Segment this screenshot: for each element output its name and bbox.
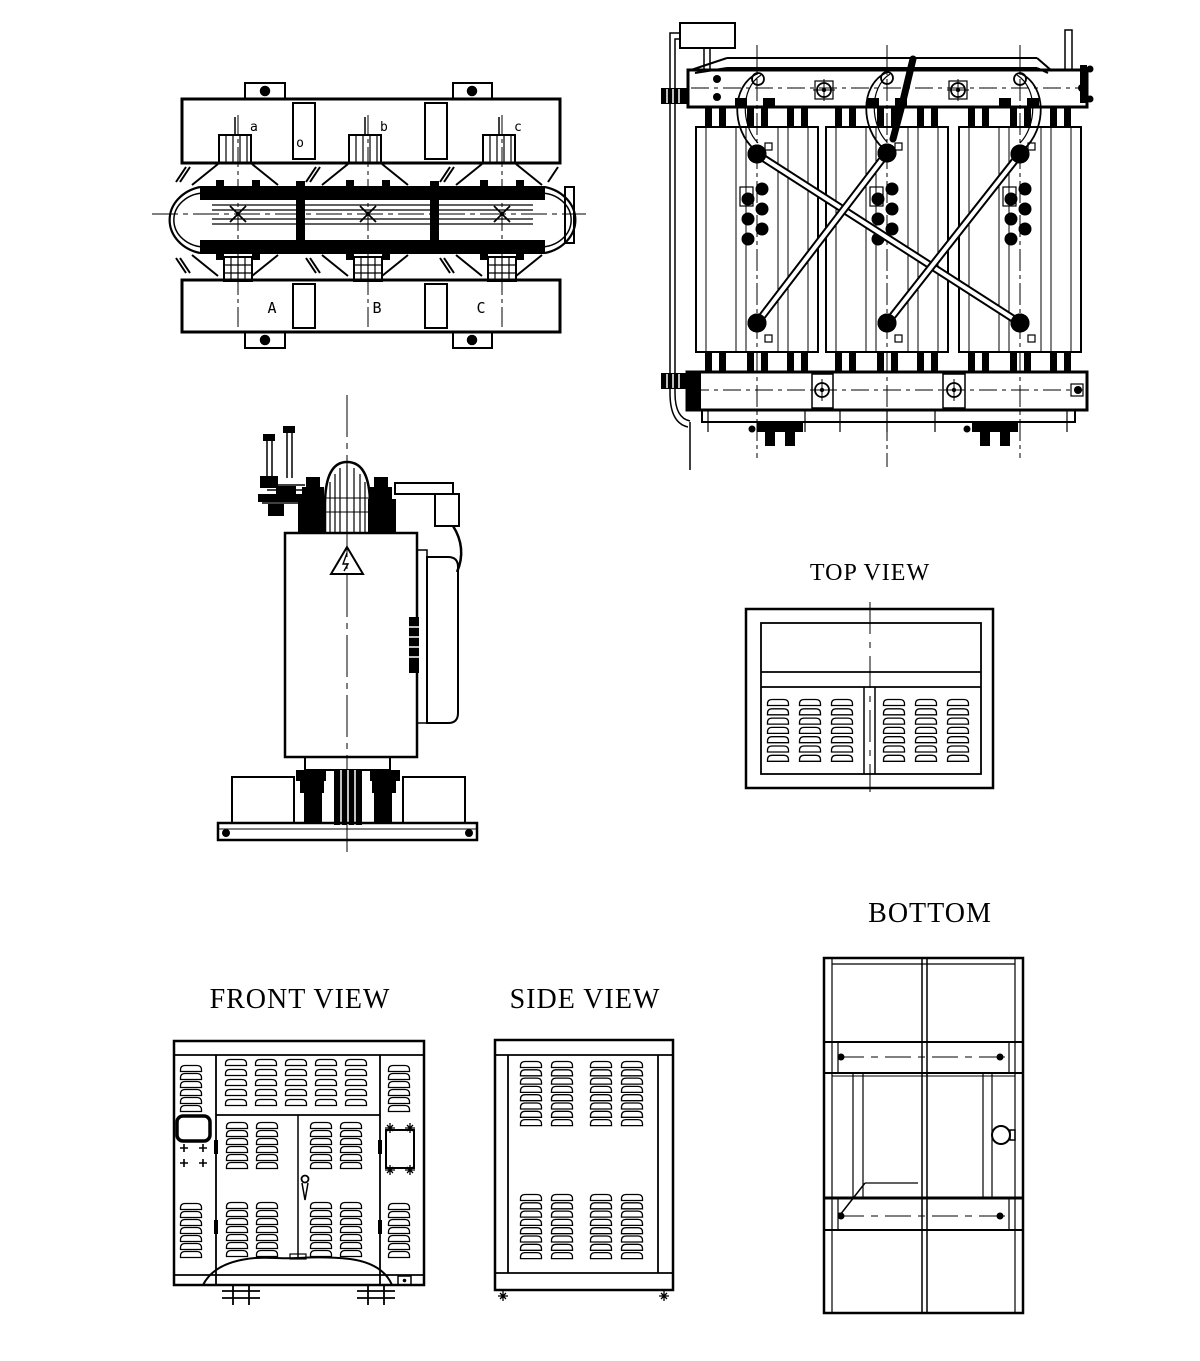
- winding-cylinder: [170, 180, 576, 260]
- right-bracket: [395, 483, 461, 572]
- hv-bushing-a: [219, 117, 251, 163]
- base-strip: [702, 410, 1075, 422]
- base-box-left: [232, 777, 294, 823]
- hv-bushing-b: [349, 117, 381, 163]
- enclosure-front-drawing: [170, 1038, 430, 1310]
- cable-cover: [203, 1257, 392, 1285]
- cross-braces: [748, 144, 1030, 333]
- drawing-sheet: o a b c: [0, 0, 1200, 1361]
- phase-label-C: C: [476, 299, 485, 317]
- base-box-right: [403, 777, 465, 823]
- door-handle: [302, 1176, 309, 1201]
- transformer-side-drawing: [210, 390, 490, 860]
- enclosure-outer: [495, 1040, 673, 1290]
- terminal-box-stem: [704, 48, 710, 70]
- louver-top-right: [591, 1062, 643, 1126]
- lifting-tab: [245, 83, 492, 99]
- lower-channel: [824, 1198, 1023, 1230]
- louver-door-right-top: [311, 1123, 362, 1169]
- enclosure-top-drawing: [740, 600, 1000, 795]
- core-dome: [322, 462, 373, 533]
- louver-left-top: [181, 1066, 202, 1112]
- clamp-bolt: [811, 379, 833, 401]
- base-feet: [749, 422, 1019, 446]
- upper-channel: [824, 1042, 1023, 1076]
- louver-door-left-top: [227, 1123, 278, 1169]
- clamp-divider: [293, 284, 315, 328]
- phase-label-A: A: [267, 299, 276, 317]
- side-ribs: [409, 617, 419, 673]
- phase-label-b: b: [380, 120, 388, 135]
- coil-body: [285, 533, 417, 757]
- middle-rails: [853, 1073, 1015, 1198]
- top-strip: [688, 30, 1072, 73]
- phase-label-c: c: [514, 120, 522, 135]
- top-clamp-band: [182, 99, 560, 163]
- louver-bottom-right: [591, 1195, 643, 1259]
- louver-top-left: [521, 1062, 573, 1126]
- bottom-clamp-band: [182, 280, 560, 332]
- core-front-drawing: [655, 15, 1100, 475]
- indicator-mark: [199, 1144, 207, 1152]
- core-plan-drawing: o a b c: [150, 55, 590, 355]
- top-view-title: TOP VIEW: [740, 560, 1000, 587]
- clamp-bolt: [943, 379, 965, 401]
- clamp-divider: [425, 284, 447, 328]
- indicator-mark: [180, 1159, 188, 1167]
- door-knob: [992, 1126, 1010, 1144]
- louver-bottom-left: [521, 1195, 573, 1259]
- hv-bushing-c: [483, 117, 515, 163]
- louver-grid-right: [884, 700, 969, 762]
- louver-right-top: [389, 1066, 410, 1112]
- indicator-mark: [199, 1159, 207, 1167]
- enclosure-outer: [824, 958, 1023, 1313]
- jack-pad-left: [222, 1285, 260, 1305]
- bottom-title: BOTTOM: [820, 898, 1040, 930]
- neutral-terminal-label: o: [296, 136, 304, 151]
- terminal-box: [680, 23, 735, 48]
- lifting-tab: [245, 332, 492, 348]
- junction-box: [385, 1123, 415, 1175]
- upper-gussets: [176, 164, 558, 185]
- side-view-title: SIDE VIEW: [490, 984, 680, 1016]
- display-window: [177, 1116, 210, 1141]
- louver-door-left-bottom: [227, 1203, 278, 1257]
- enclosure-bottom-drawing: [818, 950, 1030, 1320]
- top-pipes: [258, 426, 305, 516]
- anchor-screw: [498, 1291, 508, 1301]
- clamp-bolt: [813, 79, 835, 101]
- top-clamp-ribs: [705, 108, 1071, 127]
- front-view-title: FRONT VIEW: [170, 984, 430, 1016]
- louver-grid-left: [768, 700, 853, 762]
- phase-label-a: a: [250, 120, 258, 135]
- tie-plate: [296, 181, 305, 254]
- bottom-clamp-ribs: [705, 353, 1071, 372]
- clamp-divider: [425, 103, 447, 159]
- side-pad: [427, 557, 458, 723]
- enclosure-side-drawing: [490, 1038, 680, 1303]
- tie-plate: [430, 181, 439, 254]
- louver-center-top: [226, 1060, 367, 1106]
- louver-left-bottom: [181, 1204, 202, 1258]
- indicator-mark: [180, 1144, 188, 1152]
- phase-label-B: B: [372, 299, 381, 317]
- jack-pad-right: [357, 1285, 395, 1305]
- louver-door-right-bottom: [311, 1203, 362, 1257]
- anchor-screw: [659, 1291, 669, 1301]
- clamp-bolt: [947, 79, 969, 101]
- louver-right-bottom: [389, 1204, 410, 1258]
